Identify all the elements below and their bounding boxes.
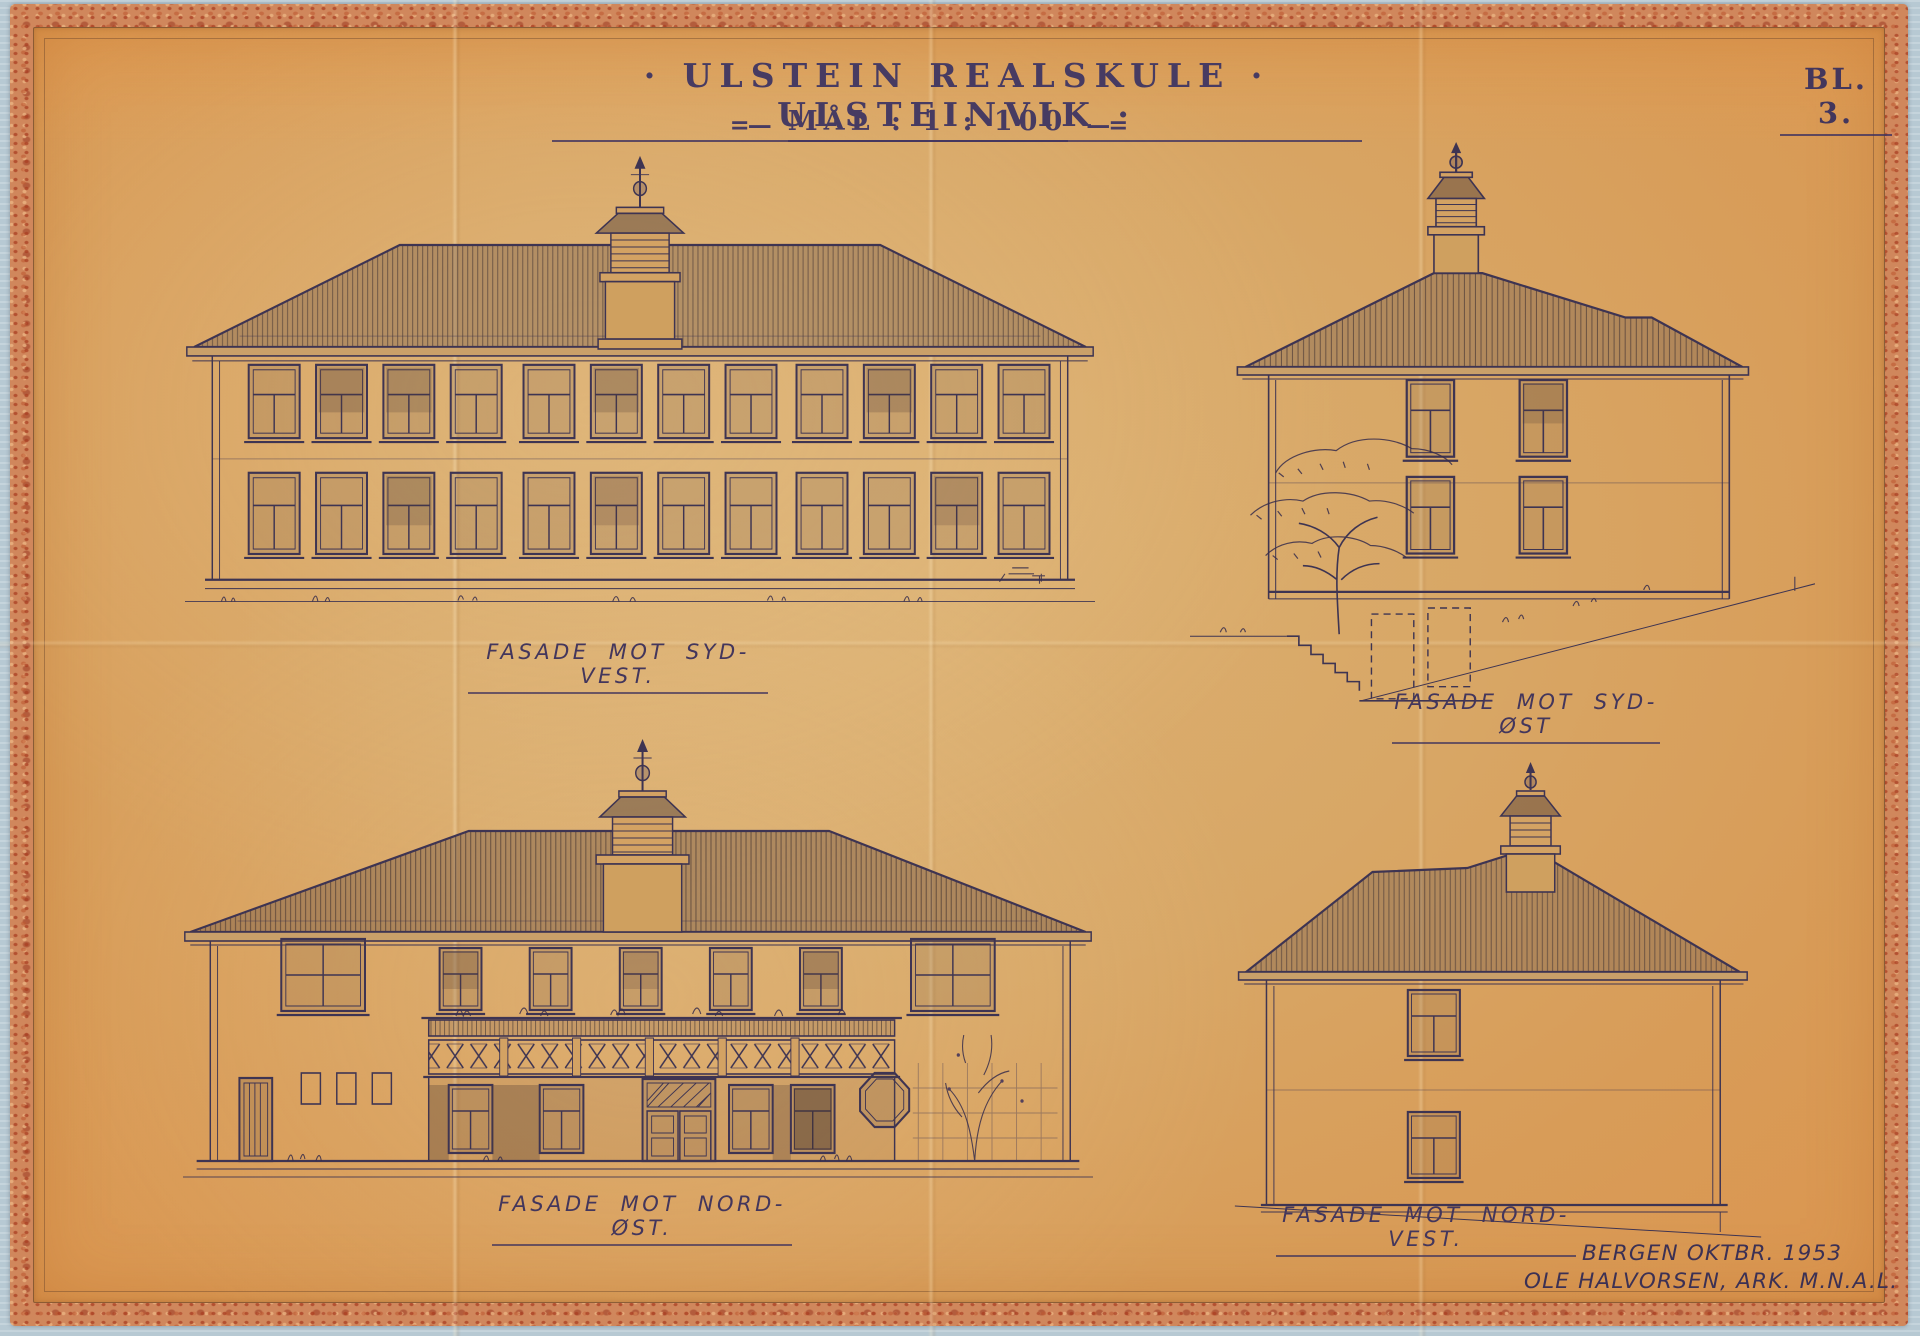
signature-place-date: BERGEN OKTBR. 1953 [1524,1240,1898,1268]
elevation-nord-vest-drawing [1233,760,1763,1240]
roof [1237,273,1748,379]
octagon-window [860,1073,909,1127]
sheet-number: BL. 3. [1780,62,1892,136]
windows [1403,380,1571,558]
lower-window-row [244,473,1054,558]
scale-line: =— MÅL : 1 : 100 —= [678,106,1178,142]
scale-text: MÅL : 1 : 100 [788,106,1069,142]
signature-architect: OLE HALVORSEN, ARK. M.N.A.L. [1524,1268,1898,1296]
elevation-syd-vest-drawing [185,142,1095,657]
elevation-syd-ost-drawing [1190,140,1815,725]
ground-and-stairs [1190,577,1815,701]
elevation-label-syd-ost: FASADE MOT SYD-ØST [1392,690,1660,744]
cupola [1428,142,1484,273]
upper-window-row [244,365,1054,442]
entrance-door [643,1079,716,1161]
walls [1266,980,1720,1205]
ground [185,568,1095,602]
elevation-label-nord-ost: FASADE MOT NORD-ØST. [492,1192,792,1246]
trellis-vine [913,1035,1058,1161]
elevation-label-syd-vest: FASADE MOT SYD-VEST. [468,640,768,694]
elevation-nord-ost-drawing [183,733,1093,1203]
scale-dash-right: —= [1086,110,1126,139]
roof [1239,848,1748,984]
scale-dash-left: =— [730,110,770,139]
upper-windows [277,939,1000,1015]
scan-backing: · ULSTEIN REALSKULE · ULSTEINVIK · =— MÅ… [0,0,1920,1336]
windows [1404,990,1464,1182]
signature-block: BERGEN OKTBR. 1953 OLE HALVORSEN, ARK. M… [1524,1240,1898,1296]
cupola [1501,762,1561,892]
